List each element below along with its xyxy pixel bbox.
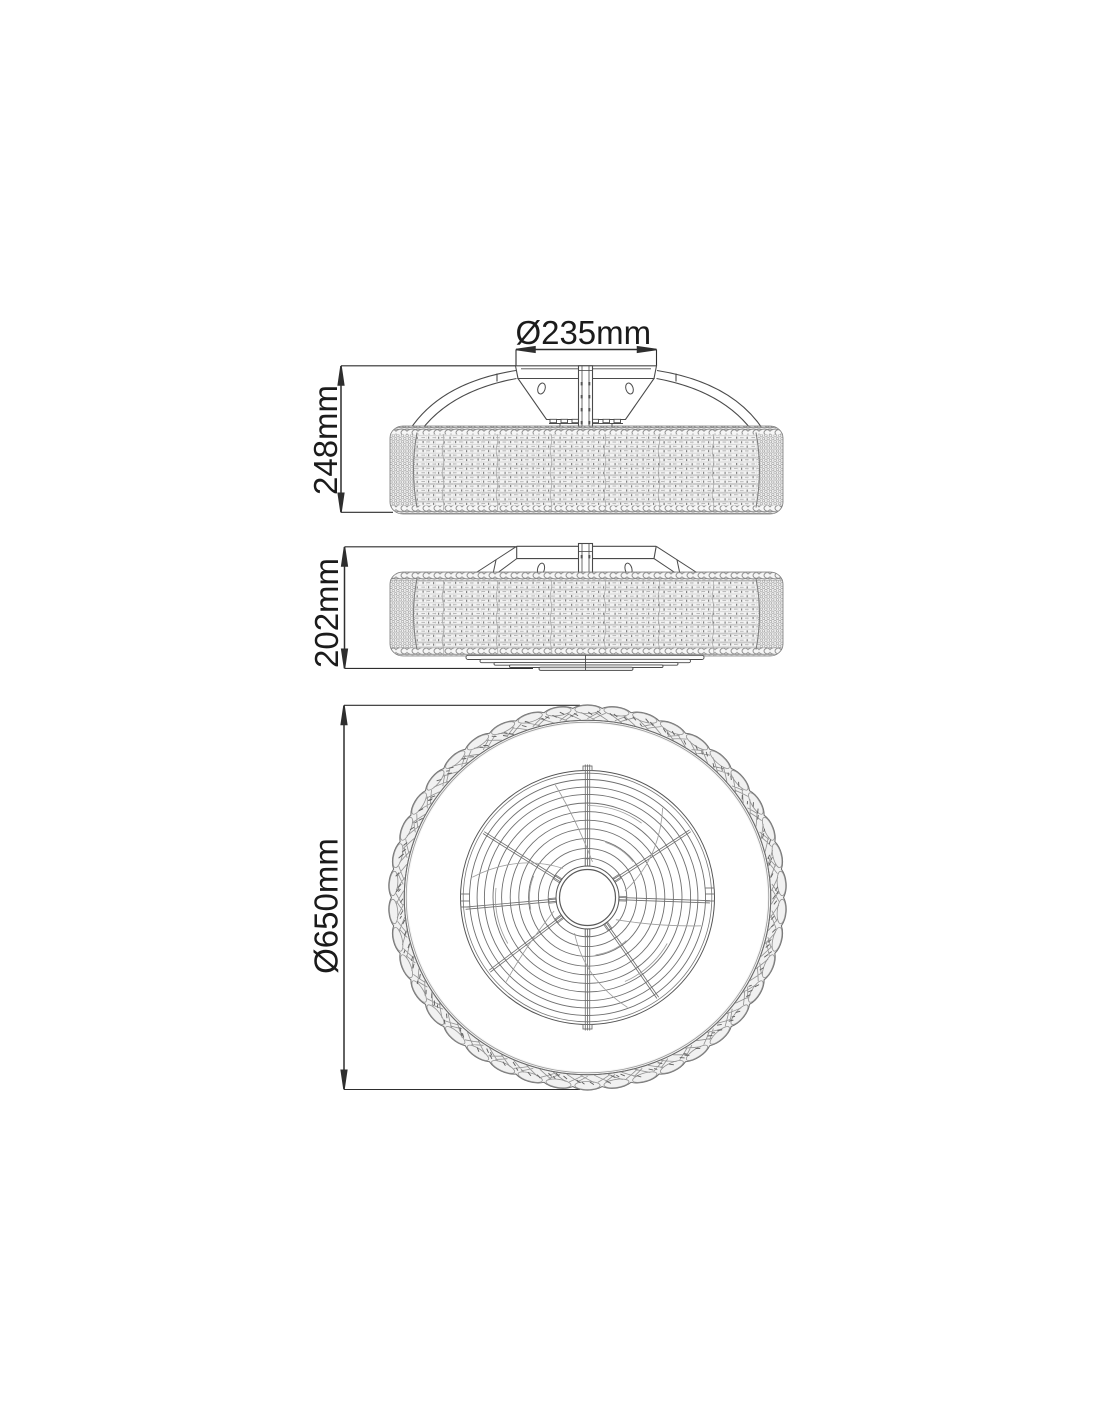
svg-text:202mm: 202mm [308,558,345,668]
svg-text:Ø650mm: Ø650mm [307,838,344,974]
svg-text:248mm: 248mm [307,385,344,495]
svg-text:Ø235mm: Ø235mm [515,314,651,351]
